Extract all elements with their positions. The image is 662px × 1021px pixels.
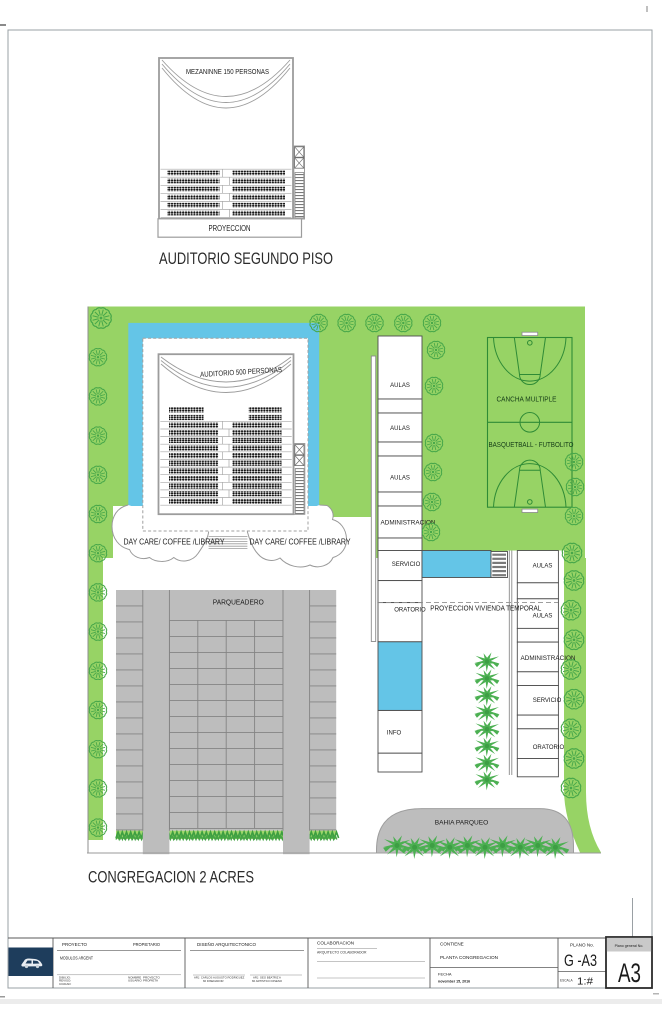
svg-text:CONGREGACION 2 ACRES: CONGREGACION 2 ACRES (88, 868, 254, 887)
svg-text:1:#: 1:# (577, 976, 593, 988)
svg-text:G -A3: G -A3 (564, 952, 597, 970)
svg-text:A3: A3 (618, 958, 641, 988)
svg-text:november 15, 2016: november 15, 2016 (438, 980, 470, 984)
svg-text:PROPIETA: PROPIETA (143, 979, 158, 983)
svg-text:BAHIA PARQUEO: BAHIA PARQUEO (435, 820, 489, 827)
svg-text:MEZANINNE 150 PERSONAS: MEZANINNE 150 PERSONAS (186, 67, 269, 76)
svg-text:MI ARTISTICO DISENO: MI ARTISTICO DISENO (252, 979, 283, 983)
svg-text:PARQUEADERO: PARQUEADERO (213, 600, 265, 607)
svg-text:Plano general No.: Plano general No. (615, 944, 644, 948)
svg-text:DISEÑO ARQUITECTONICO: DISEÑO ARQUITECTONICO (197, 941, 256, 947)
svg-text:ESCALA: ESCALA (560, 979, 573, 983)
svg-text:AULAS: AULAS (533, 564, 553, 570)
svg-text:PROPIETARIO: PROPIETARIO (133, 942, 160, 947)
svg-text:INFO: INFO (387, 731, 402, 737)
svg-text:AULAS: AULAS (533, 614, 553, 620)
svg-text:BASQUETBALL - FUTBOLITO: BASQUETBALL - FUTBOLITO (489, 440, 574, 449)
svg-text:DAY CARE/ COFFEE /LIBRARY: DAY CARE/ COFFEE /LIBRARY (250, 538, 352, 547)
svg-text:AUDITORIO SEGUNDO PISO: AUDITORIO SEGUNDO PISO (159, 249, 333, 268)
svg-text:SERVICIO: SERVICIO (533, 698, 562, 704)
svg-text:MODULOS ARGENT: MODULOS ARGENT (60, 956, 93, 961)
svg-text:CANCHA MULTIPLE: CANCHA MULTIPLE (497, 395, 557, 404)
svg-text:PROYECTO: PROYECTO (62, 942, 87, 947)
svg-text:PROYECCION VIVIENDA TEMPORAL: PROYECCION VIVIENDA TEMPORAL (430, 604, 541, 613)
svg-text:FECHA: FECHA (438, 972, 452, 977)
svg-text:SERVICIO: SERVICIO (392, 562, 421, 568)
svg-text:CIUDAD:: CIUDAD: (59, 982, 72, 986)
svg-text:PLANO No.: PLANO No. (570, 943, 594, 948)
svg-text:ORATORIO: ORATORIO (394, 608, 426, 614)
svg-text:PROYECCION: PROYECCION (209, 224, 251, 233)
svg-text:AULAS: AULAS (390, 383, 410, 389)
svg-text:AULAS: AULAS (390, 476, 410, 482)
svg-text:ARQUITECTO COLABORADOR: ARQUITECTO COLABORADOR (317, 951, 367, 955)
svg-text:DAY CARE/ COFFEE /LIBRARY: DAY CARE/ COFFEE /LIBRARY (124, 538, 226, 547)
svg-text:MI DISENADOR: MI DISENADOR (203, 979, 224, 983)
svg-text:ORATORIO: ORATORIO (533, 745, 565, 751)
svg-text:AULAS: AULAS (390, 426, 410, 432)
svg-text:COLABORACION: COLABORACION (317, 941, 354, 946)
svg-text:CONTIENE: CONTIENE (440, 942, 464, 947)
svg-text:USUARIO: USUARIO (128, 979, 142, 983)
svg-text:PLANTA CONGREGACION: PLANTA CONGREGACION (440, 955, 498, 960)
